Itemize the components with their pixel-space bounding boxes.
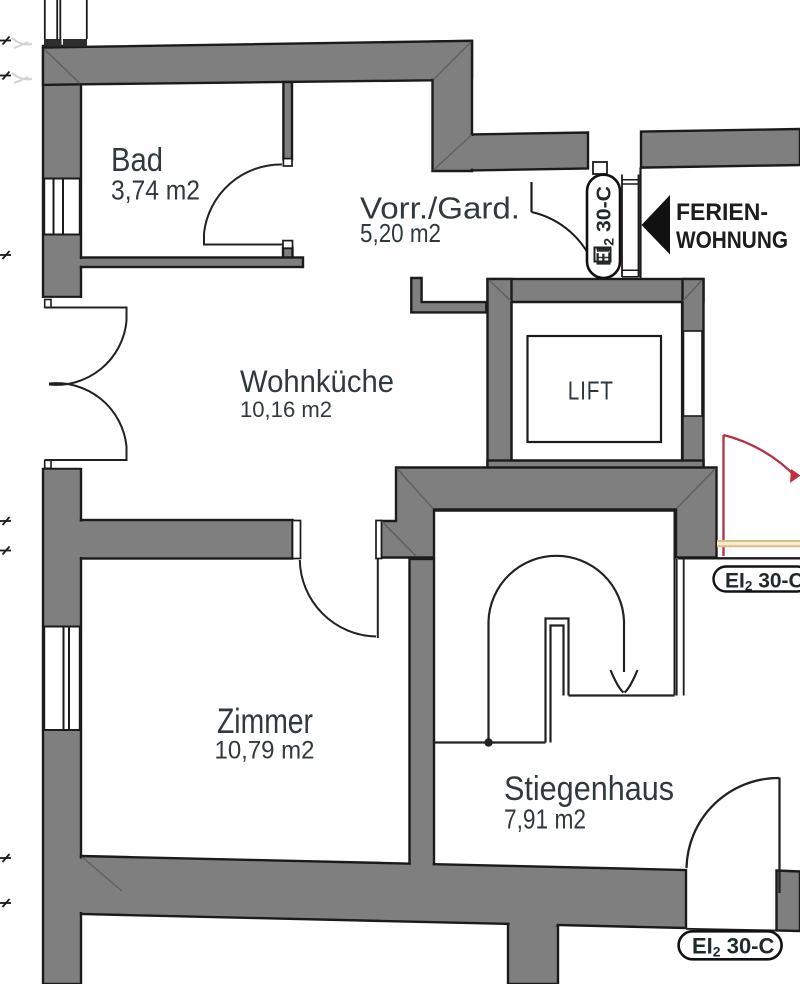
svg-text:3,74 m2: 3,74 m2 <box>111 175 200 206</box>
svg-text:WOHNUNG: WOHNUNG <box>676 227 788 254</box>
svg-text:5,20 m2: 5,20 m2 <box>360 218 441 248</box>
svg-text:EI2 30-C: EI2 30-C <box>594 186 617 266</box>
svg-text:Wohnküche: Wohnküche <box>240 363 394 399</box>
svg-text:FERIEN-: FERIEN- <box>676 199 768 226</box>
svg-text:Bad: Bad <box>111 141 163 178</box>
svg-text:Stiegenhaus: Stiegenhaus <box>504 770 674 808</box>
svg-text:Zimmer: Zimmer <box>217 702 313 741</box>
svg-text:10,16 m2: 10,16 m2 <box>240 397 332 422</box>
svg-text:EI2 30-C: EI2 30-C <box>725 570 800 594</box>
svg-text:LIFT: LIFT <box>568 376 614 406</box>
svg-text:EI2 30-C: EI2 30-C <box>692 934 775 960</box>
svg-text:10,79 m2: 10,79 m2 <box>215 737 315 765</box>
svg-text:7,91 m2: 7,91 m2 <box>504 804 586 835</box>
